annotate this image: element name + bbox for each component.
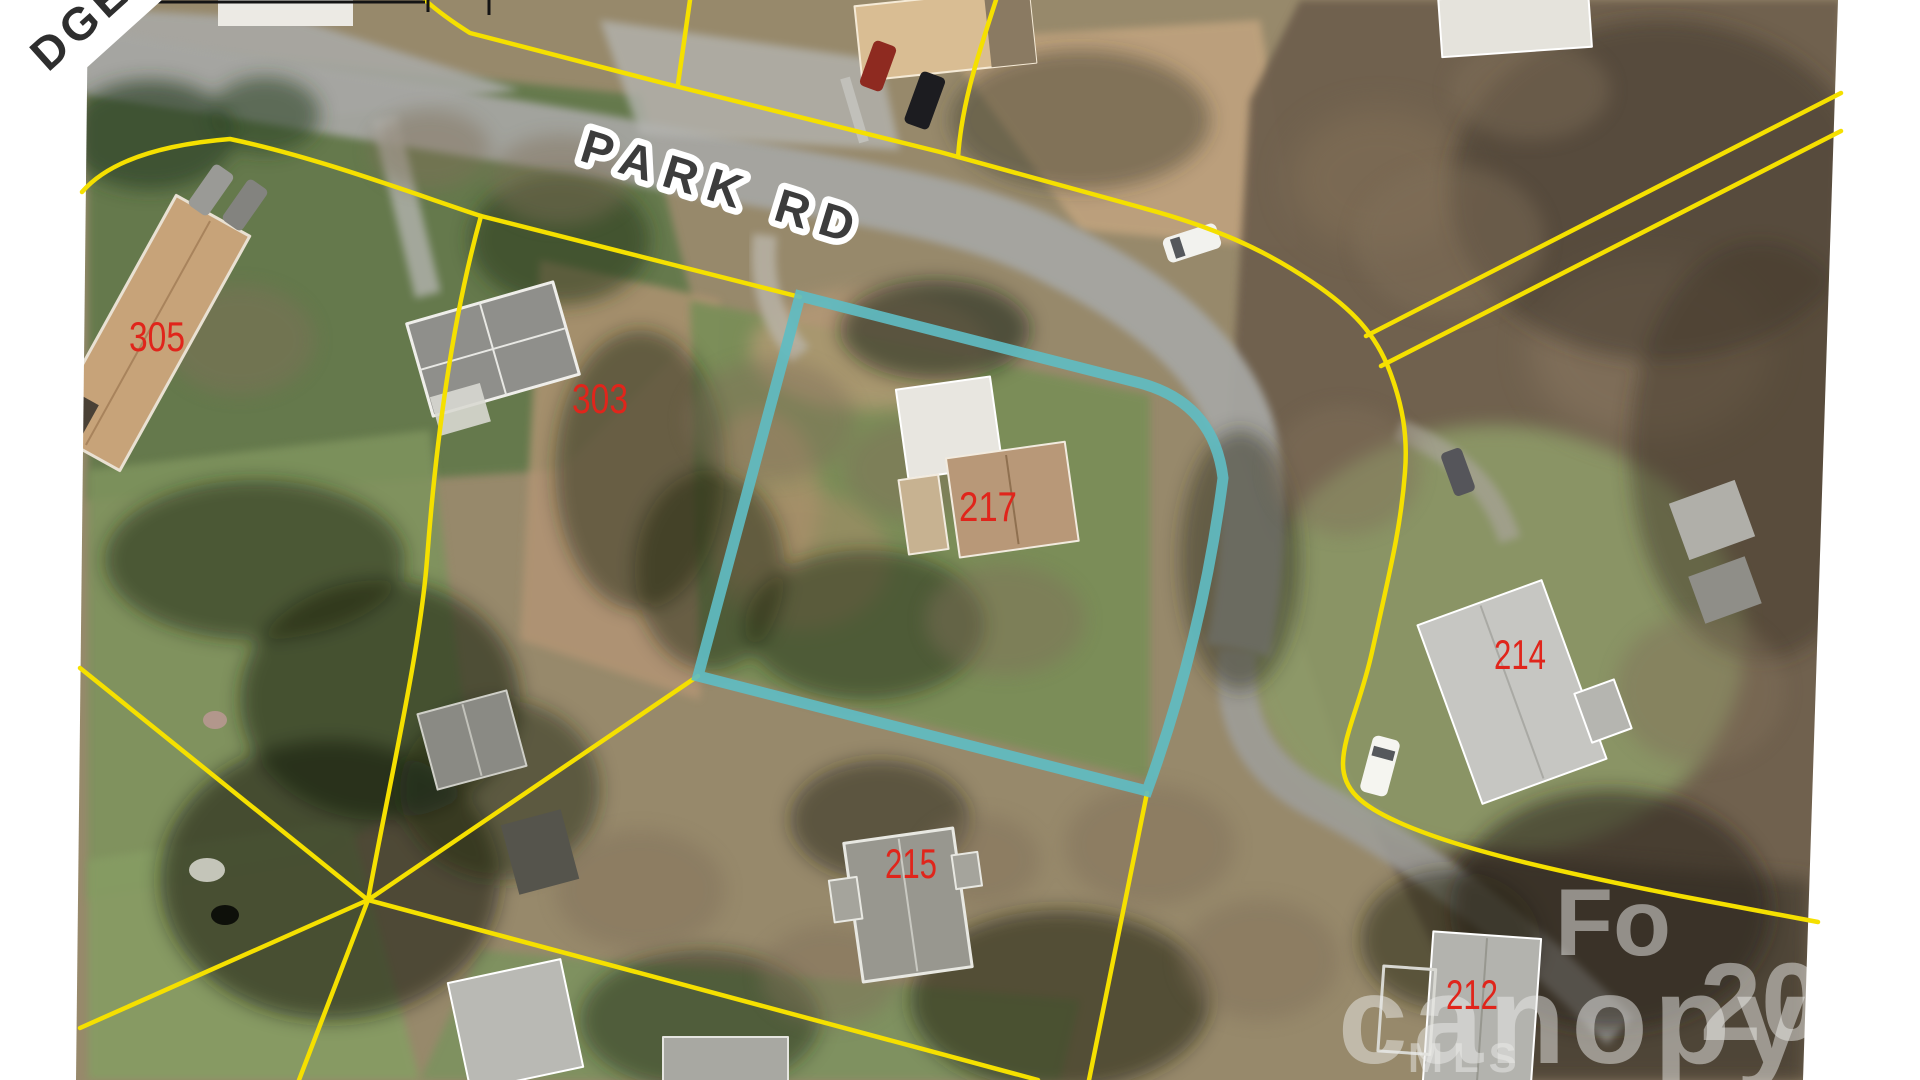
parcel-number-214: 214: [1494, 631, 1546, 678]
building-top-left: [218, 0, 353, 26]
parcel-number-305: 305: [129, 313, 185, 360]
parcel-number-212: 212: [1446, 971, 1498, 1018]
house-bottom-center: [663, 1037, 788, 1080]
parcel-number-215: 215: [885, 840, 937, 887]
image-edge-left: [0, 0, 88, 1080]
house-top-right: [1438, 0, 1592, 57]
watermark-fragment-right: 20: [1700, 941, 1822, 1064]
parcel-number-303: 303: [572, 375, 628, 422]
parcel-number-217: 217: [959, 483, 1017, 530]
map-canvas: Fo canopy MLS 20 DGE PARK RD 305: [0, 0, 1920, 1080]
watermark-mls: MLS: [1408, 1034, 1527, 1080]
aerial-map-image: Fo canopy MLS 20 DGE PARK RD 305: [0, 0, 1920, 1080]
